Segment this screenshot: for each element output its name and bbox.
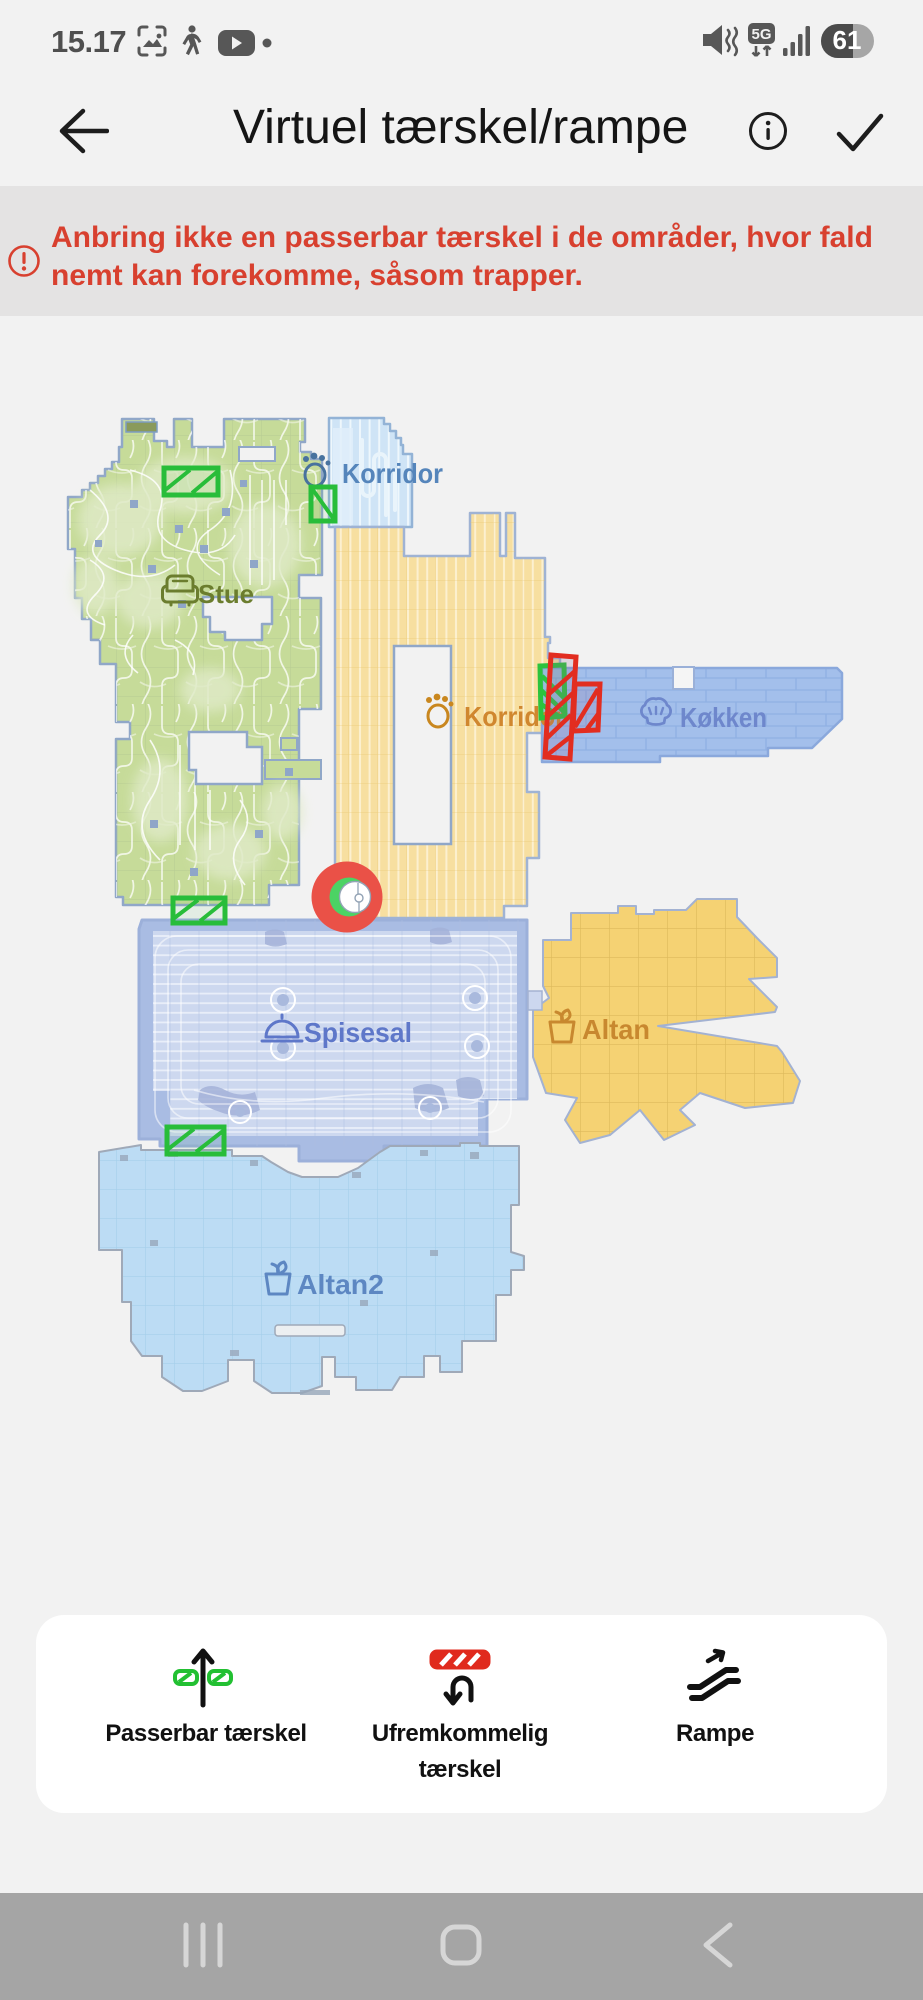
svg-text:Spisesal: Spisesal	[304, 1017, 412, 1048]
svg-text:Altan2: Altan2	[297, 1269, 384, 1300]
svg-text:Køkken: Køkken	[680, 702, 767, 733]
svg-text:Korridor: Korridor	[342, 458, 443, 489]
svg-text:Stue: Stue	[198, 579, 254, 609]
svg-text:Altan: Altan	[582, 1014, 650, 1045]
